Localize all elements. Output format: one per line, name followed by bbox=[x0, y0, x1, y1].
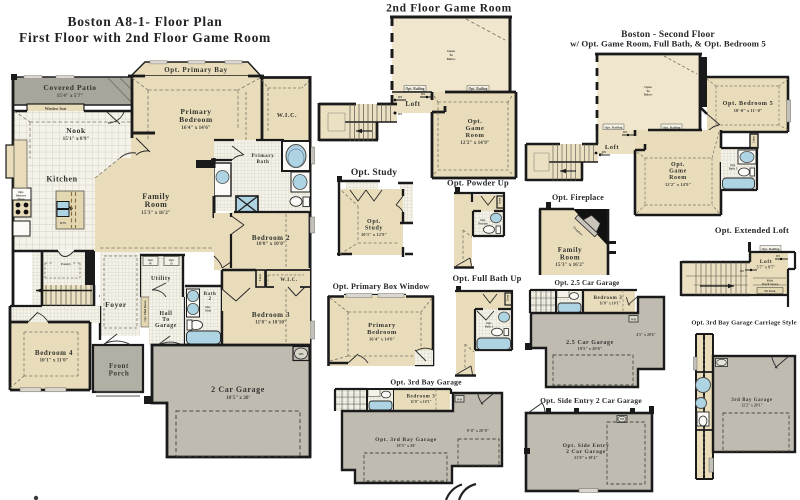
svg-text:Bedroom 4: Bedroom 4 bbox=[35, 349, 73, 357]
svg-text:Room: Room bbox=[145, 200, 168, 209]
svg-text:Study: Study bbox=[365, 226, 383, 232]
svg-text:DN: DN bbox=[599, 153, 603, 156]
svg-text:WH: WH bbox=[457, 398, 463, 401]
svg-text:3rd Bay Garage: 3rd Bay Garage bbox=[731, 398, 772, 403]
svg-text:D/W: D/W bbox=[60, 221, 67, 225]
svg-text:Opt. Bedroom 5: Opt. Bedroom 5 bbox=[723, 100, 774, 107]
svg-text:Opt. Fireplace: Opt. Fireplace bbox=[552, 193, 604, 202]
svg-text:Opt. Primary Bay: Opt. Primary Bay bbox=[164, 66, 227, 74]
svg-text:12'2" x 14'9": 12'2" x 14'9" bbox=[460, 140, 490, 146]
svg-text:4'5" x 20'6": 4'5" x 20'6" bbox=[636, 333, 656, 337]
svg-text:Opt.: Opt. bbox=[468, 118, 483, 125]
svg-text:Opt. Railing: Opt. Railing bbox=[605, 125, 623, 129]
svg-text:12'2" x 14'9": 12'2" x 14'9" bbox=[665, 182, 691, 187]
svg-text:First Floor with 2nd Floor Gam: First Floor with 2nd Floor Game Room bbox=[19, 30, 271, 45]
svg-text:WH: WH bbox=[620, 418, 625, 421]
svg-text:15'1" x 8'9": 15'1" x 8'9" bbox=[63, 136, 90, 142]
svg-text:Opt.: Opt. bbox=[367, 219, 381, 225]
svg-text:Bath: Bath bbox=[256, 159, 269, 165]
svg-text:Window Seat: Window Seat bbox=[45, 107, 67, 111]
svg-text:WH: WH bbox=[631, 318, 637, 321]
svg-text:Utility: Utility bbox=[151, 276, 171, 282]
svg-text:Nook: Nook bbox=[66, 126, 86, 135]
svg-text:Bedroom: Bedroom bbox=[367, 329, 397, 336]
svg-text:Opt. Powder Up: Opt. Powder Up bbox=[447, 178, 509, 188]
svg-text:Game: Game bbox=[669, 169, 687, 175]
svg-text:Linen: Linen bbox=[507, 294, 510, 301]
svg-text:10'0" x 10'0": 10'0" x 10'0" bbox=[256, 241, 286, 247]
svg-text:Opt. Railing: Opt. Railing bbox=[762, 247, 780, 251]
svg-text:Bath 5: Bath 5 bbox=[729, 167, 738, 171]
svg-text:Kitchen: Kitchen bbox=[46, 175, 77, 184]
svg-text:2nd Floor Game Room: 2nd Floor Game Room bbox=[386, 3, 512, 15]
svg-text:Bath 2: Bath 2 bbox=[485, 325, 494, 329]
svg-text:Opt. Mud Room: Opt. Mud Room bbox=[143, 300, 147, 322]
svg-text:Opt. Railing: Opt. Railing bbox=[469, 87, 488, 91]
svg-text:W: W bbox=[149, 261, 152, 265]
svg-text:18'5" x 20': 18'5" x 20' bbox=[396, 443, 415, 448]
svg-text:Primary: Primary bbox=[368, 322, 396, 329]
svg-text:Work Space: Work Space bbox=[762, 282, 779, 286]
svg-text:11'0" x 10'10": 11'0" x 10'10" bbox=[255, 320, 287, 326]
svg-text:Bedroom 3: Bedroom 3 bbox=[252, 311, 290, 319]
svg-text:Opt. Study: Opt. Study bbox=[351, 168, 397, 178]
svg-text:18'5" x 20': 18'5" x 20' bbox=[226, 395, 250, 401]
svg-text:Room: Room bbox=[465, 132, 484, 139]
svg-text:Bedroom: Bedroom bbox=[179, 115, 213, 124]
svg-text:Boston A8-1- Floor Plan: Boston A8-1- Floor Plan bbox=[68, 14, 223, 29]
svg-text:10'-0" x 11'-0": 10'-0" x 11'-0" bbox=[734, 108, 763, 113]
svg-text:Opt. 2.5 Car Garage: Opt. 2.5 Car Garage bbox=[555, 279, 620, 287]
svg-text:10'1" x 11'0": 10'1" x 11'0" bbox=[39, 358, 68, 364]
svg-text:Opt. Primary Box Window: Opt. Primary Box Window bbox=[333, 282, 430, 291]
svg-text:Room: Room bbox=[560, 253, 580, 261]
svg-text:Opt. 3rd Bay Garage Carriage S: Opt. 3rd Bay Garage Carriage Style bbox=[691, 320, 796, 327]
svg-text:16'4" x 14'0": 16'4" x 14'0" bbox=[369, 337, 395, 342]
svg-text:W.I.C.: W.I.C. bbox=[280, 278, 298, 283]
svg-text:Covered Patio: Covered Patio bbox=[43, 83, 96, 92]
svg-text:Linen: Linen bbox=[753, 136, 756, 143]
svg-text:10'1" x 12'9": 10'1" x 12'9" bbox=[361, 232, 387, 237]
svg-text:Opt. Extended Loft: Opt. Extended Loft bbox=[715, 225, 789, 235]
svg-text:Linen: Linen bbox=[259, 274, 262, 281]
svg-text:Foyer: Foyer bbox=[105, 300, 127, 309]
svg-text:Porch: Porch bbox=[109, 370, 130, 378]
svg-text:Linen: Linen bbox=[499, 197, 502, 204]
svg-text:Loft: Loft bbox=[405, 100, 420, 108]
svg-text:Opt.: Opt. bbox=[671, 162, 685, 168]
svg-text:Opt. Side Entry 2 Car Garage: Opt. Side Entry 2 Car Garage bbox=[540, 396, 642, 405]
svg-text:15'3" x 16'2": 15'3" x 16'2" bbox=[555, 262, 585, 268]
svg-text:B/t Desk: B/t Desk bbox=[765, 289, 776, 293]
svg-text:Loft: Loft bbox=[605, 144, 620, 151]
svg-text:DN: DN bbox=[776, 255, 780, 258]
svg-text:2 Car Garage: 2 Car Garage bbox=[211, 385, 265, 394]
svg-text:Room: Room bbox=[669, 175, 687, 181]
svg-text:Powder: Powder bbox=[478, 222, 488, 226]
svg-text:Opt. Railing: Opt. Railing bbox=[406, 87, 425, 91]
svg-text:11'0" x 10'1": 11'0" x 10'1" bbox=[410, 400, 431, 404]
svg-text:Bedroom 3: Bedroom 3 bbox=[594, 296, 623, 301]
svg-text:Opt. Full Bath Up: Opt. Full Bath Up bbox=[452, 273, 521, 283]
svg-text:19'5" x 20'6": 19'5" x 20'6" bbox=[578, 346, 603, 351]
svg-text:Soak: Soak bbox=[205, 308, 212, 312]
svg-text:WH: WH bbox=[299, 353, 305, 356]
svg-text:15'3" x 16'2": 15'3" x 16'2" bbox=[141, 210, 171, 216]
svg-text:16'4" x 14'6": 16'4" x 14'6" bbox=[181, 125, 211, 131]
svg-text:Opt. 3rd Bay Garage: Opt. 3rd Bay Garage bbox=[390, 378, 462, 387]
svg-text:Pantry: Pantry bbox=[61, 262, 71, 266]
svg-text:15'4" x 5'7": 15'4" x 5'7" bbox=[57, 93, 84, 99]
svg-text:5'7" x 9'7": 5'7" x 9'7" bbox=[757, 265, 776, 270]
svg-text:9'-8" x 20'-8": 9'-8" x 20'-8" bbox=[467, 429, 489, 433]
svg-text:Game: Game bbox=[465, 125, 484, 132]
svg-text:11'0" x 10'1": 11'0" x 10'1" bbox=[599, 302, 620, 306]
svg-text:21'0" x 19'4": 21'0" x 19'4" bbox=[574, 455, 598, 460]
svg-text:W.I.C.: W.I.C. bbox=[277, 113, 297, 119]
svg-text:Below: Below bbox=[447, 57, 456, 61]
svg-text:2: 2 bbox=[208, 297, 211, 302]
svg-text:Bedroom 3: Bedroom 3 bbox=[407, 395, 436, 400]
svg-text:Below: Below bbox=[644, 93, 653, 97]
svg-text:DN: DN bbox=[623, 131, 627, 134]
svg-text:w/ Opt. Game Room, Full Bath,: w/ Opt. Game Room, Full Bath, & Opt. Bed… bbox=[570, 39, 766, 49]
svg-text:12'2" x 20'1": 12'2" x 20'1" bbox=[741, 404, 763, 408]
svg-text:Garage: Garage bbox=[155, 323, 177, 329]
svg-text:DN: DN bbox=[740, 270, 744, 273]
